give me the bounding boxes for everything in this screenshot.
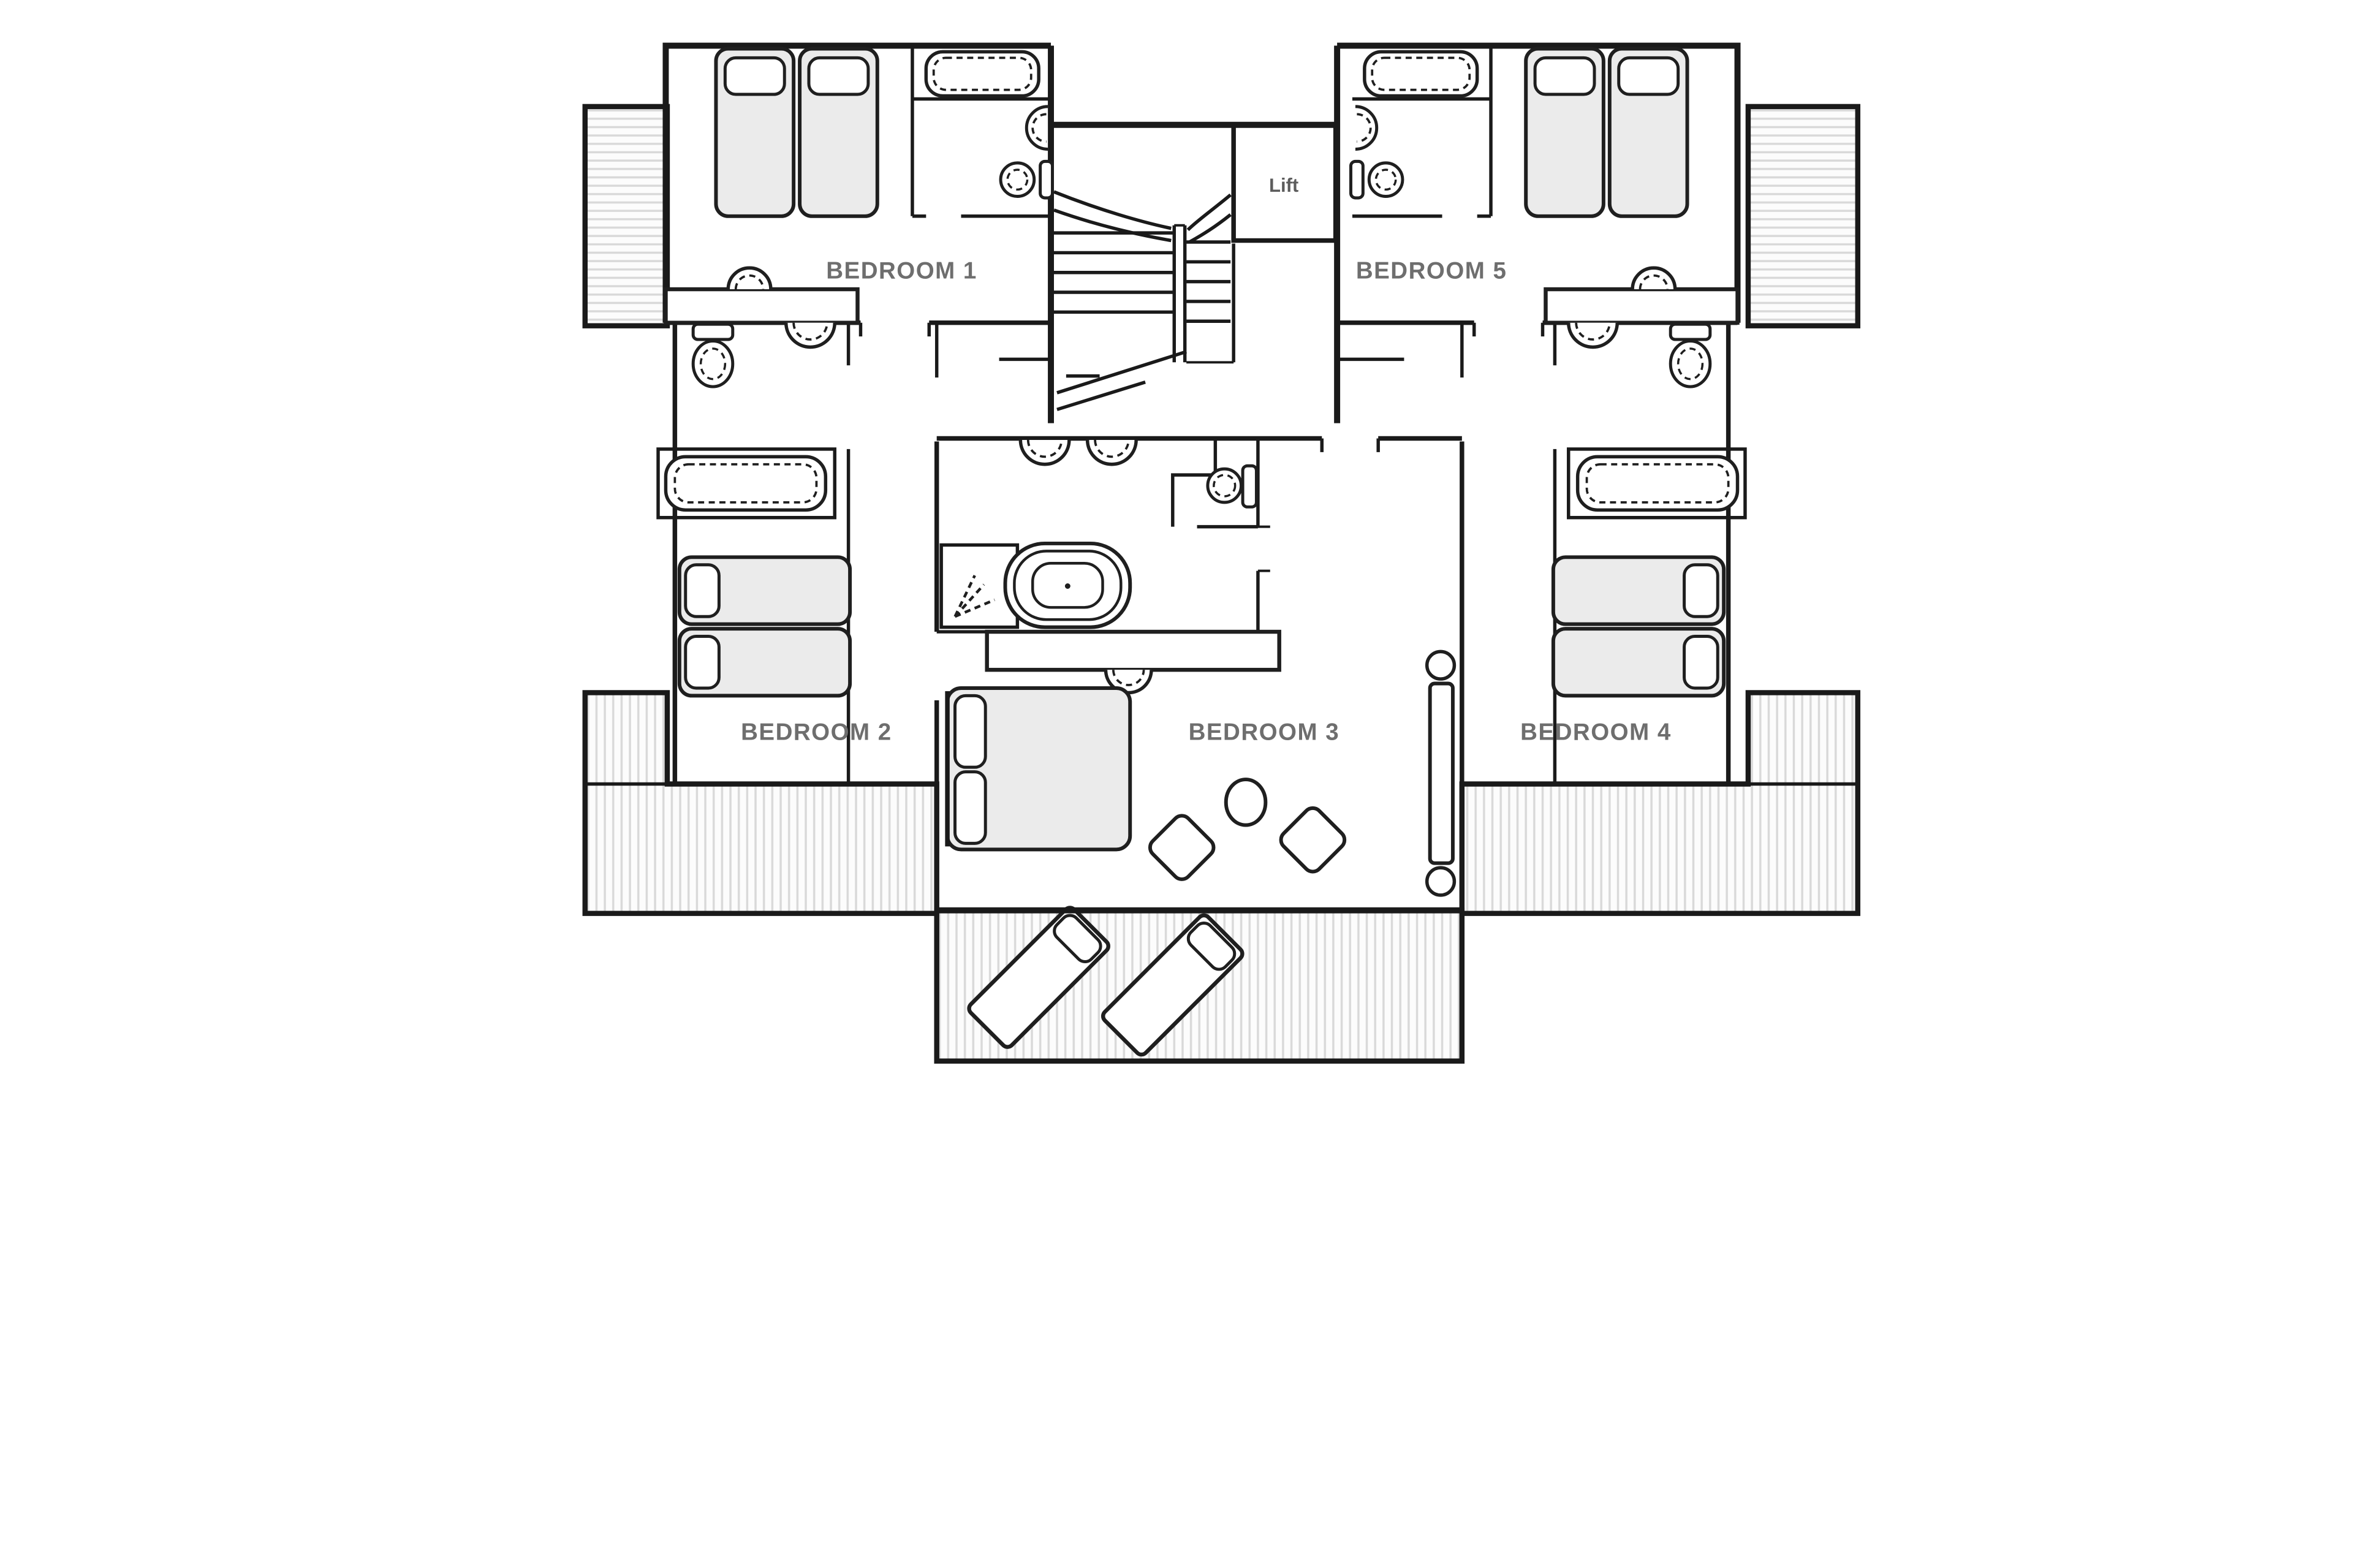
pillow — [809, 58, 868, 94]
toilet-cistern — [693, 324, 733, 339]
bathtub-inner — [1372, 58, 1469, 89]
handrail-curve — [1054, 192, 1171, 229]
staircase — [1054, 192, 1233, 409]
washbasin-pedestal — [1040, 161, 1053, 198]
pillow — [1684, 565, 1718, 616]
vanity-counter — [665, 289, 857, 323]
bathtub-inner — [1587, 464, 1729, 502]
toilet-inner — [1214, 475, 1235, 496]
washbasin-pedestal — [1351, 161, 1363, 198]
pillow — [725, 58, 784, 94]
bedroom-1-label: BEDROOM 1 — [826, 258, 977, 284]
chair — [1277, 805, 1348, 876]
bedroom-5-label: BEDROOM 5 — [1356, 258, 1507, 284]
bedroom-2-label: BEDROOM 2 — [741, 719, 892, 745]
handrail-curve — [1189, 214, 1230, 242]
sliding-door — [1430, 684, 1453, 863]
handrail-curve — [1188, 195, 1231, 230]
chair — [1146, 812, 1218, 883]
floor-plan-canvas: Lift BEDROOM 1 — [0, 0, 2353, 1568]
bathtub-inner — [934, 58, 1031, 89]
pillow — [1619, 58, 1678, 94]
bedroom-1: BEDROOM 1 — [665, 49, 1052, 323]
round-table — [1226, 779, 1266, 825]
bathtub-inner — [675, 464, 816, 502]
bedroom-4-label: BEDROOM 4 — [1520, 719, 1672, 745]
pillow — [955, 695, 986, 767]
vanity-counter — [1545, 289, 1737, 323]
right-balcony — [1748, 107, 1858, 326]
floor-plan-svg: Lift BEDROOM 1 — [0, 0, 2353, 1568]
lift-label: Lift — [1269, 175, 1298, 196]
lift: Lift — [1233, 125, 1335, 241]
shower-spray — [955, 575, 995, 616]
bedroom-2: BEDROOM 2 — [658, 323, 892, 746]
stair-break-line — [1057, 352, 1186, 393]
pillow — [955, 772, 986, 844]
bedroom-5: BEDROOM 5 — [1351, 49, 1737, 323]
left-balcony — [585, 107, 667, 326]
pillow — [1535, 58, 1594, 94]
shared-bathroom — [941, 440, 1279, 692]
door-handle — [1427, 651, 1455, 679]
washbasin-inner — [1376, 170, 1395, 189]
pillow — [686, 637, 719, 688]
pillow — [1684, 637, 1718, 688]
bedroom-3: BEDROOM 3 — [947, 651, 1454, 895]
toilet-cistern — [1243, 466, 1256, 507]
bedroom-3-label: BEDROOM 3 — [1189, 719, 1340, 745]
toilet-inner — [1678, 349, 1703, 379]
bathtub-drain — [1065, 583, 1070, 589]
vanity-counter — [987, 632, 1279, 670]
stair-break-line — [1057, 382, 1145, 410]
door-handle — [1427, 868, 1455, 895]
toilet-cistern — [1670, 324, 1710, 339]
washbasin-inner — [1007, 170, 1027, 189]
toilet-inner — [701, 349, 726, 379]
pillow — [686, 565, 719, 616]
